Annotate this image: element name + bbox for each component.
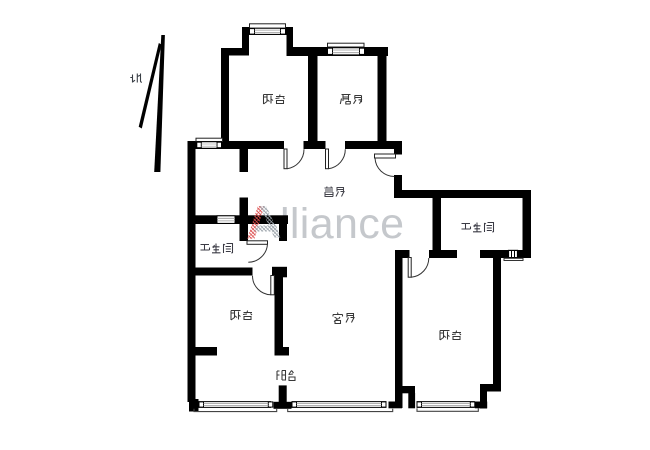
svg-text:lliance: lliance: [280, 200, 404, 248]
